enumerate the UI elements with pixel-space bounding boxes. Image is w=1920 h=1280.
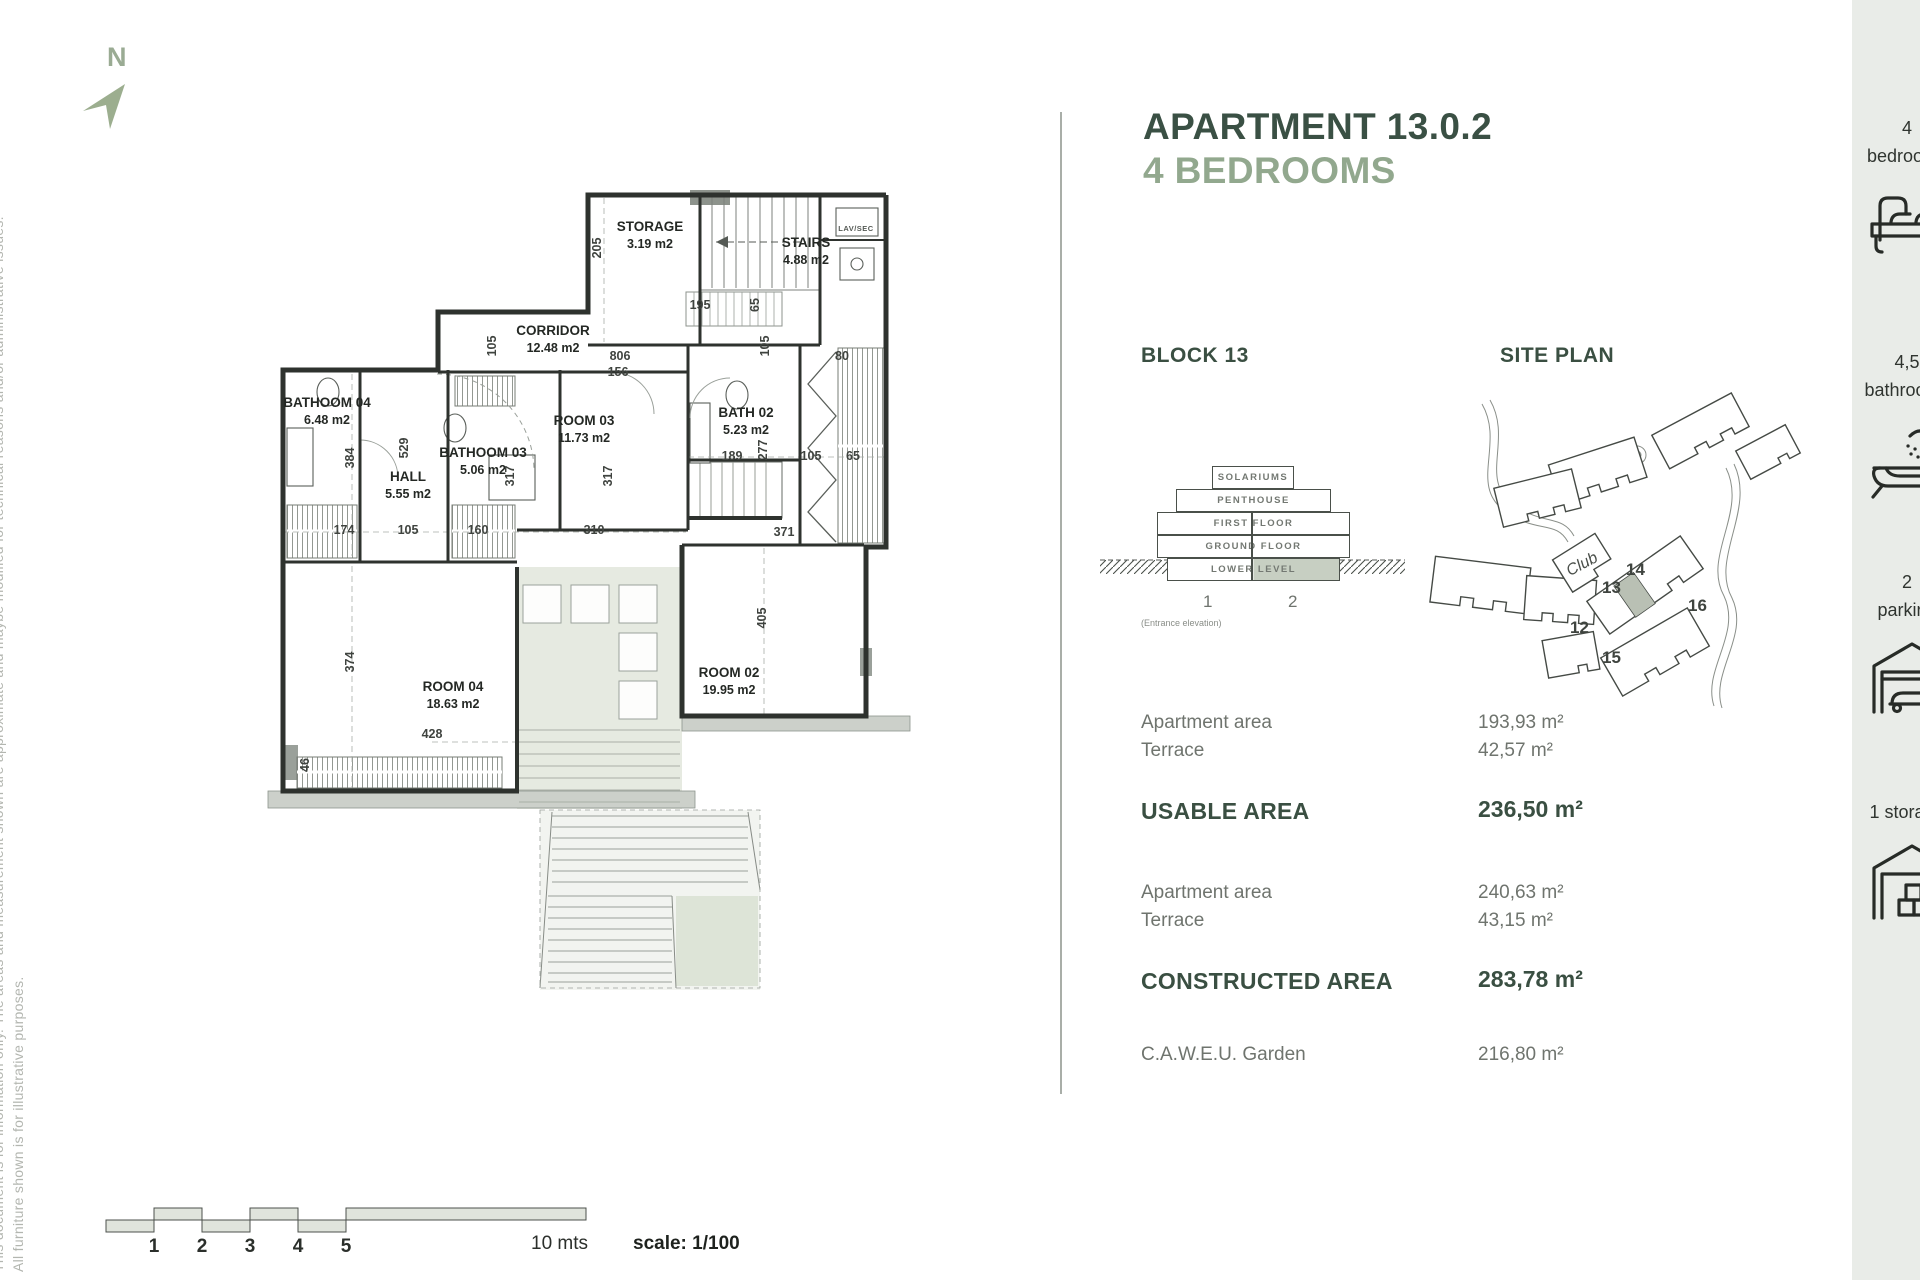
dim-text: 405 (755, 608, 769, 629)
apartment-title: APARTMENT 13.0.2 (1143, 106, 1492, 148)
parking-count: 2 (1902, 572, 1912, 593)
area-row-value: 43,15 m² (1478, 910, 1553, 932)
site-label-13: 13 (1602, 578, 1621, 598)
site-label-16: 16 (1688, 596, 1707, 616)
constructed-area-value: 283,78 m² (1478, 966, 1583, 993)
area-row-label: Terrace (1141, 910, 1204, 932)
room-label-lav: LAV/SEC (838, 224, 873, 234)
disclaimer-line-1: This document is for information only. T… (0, 216, 6, 1272)
dim-text: 195 (690, 298, 711, 312)
garden-value: 216,80 m² (1478, 1044, 1564, 1066)
dim-text: 384 (343, 448, 357, 469)
site-label-12: 12 (1570, 618, 1589, 638)
amenities-sidebar: 4 bedrooms 4,5 bathrooms 2 parking (1852, 0, 1920, 1280)
room-label-hall: HALL5.55 m2 (385, 468, 431, 502)
elevation-level-lower-level: LOWER LEVEL (1167, 558, 1340, 581)
scale-tick: 1 (149, 1236, 160, 1258)
storage-count: 1 storage (1869, 802, 1920, 823)
brochure-page: N This document is for information only.… (0, 0, 1920, 1280)
room-label-stairs: STAIRS4.88 m2 (782, 234, 831, 268)
dim-text: 310 (584, 523, 605, 537)
dim-text: 105 (801, 449, 822, 463)
dim-text: 806 (610, 349, 631, 363)
dim-text: 105 (758, 336, 772, 357)
usable-area-value: 236,50 m² (1478, 796, 1583, 823)
dim-text: 529 (397, 438, 411, 459)
scale-tick: 4 (293, 1236, 304, 1258)
room-label-bath-02: BATH 025.23 m2 (718, 404, 773, 438)
area-row-label: Apartment area (1141, 712, 1272, 734)
elevation-unit-1: 1 (1203, 592, 1212, 612)
scale-tick: 2 (197, 1236, 208, 1258)
disclaimer-line-2: All furniture shown is for illustrative … (10, 976, 26, 1272)
garden-label: C.A.W.E.U. Garden (1141, 1044, 1306, 1066)
dim-text: 317 (601, 466, 615, 487)
area-row-label: Apartment area (1141, 882, 1272, 904)
scale-ratio-label: scale: 1/100 (633, 1233, 740, 1255)
site-label-14: 14 (1626, 560, 1645, 580)
dim-text: 189 (722, 449, 743, 463)
bathrooms-label: bathrooms (1864, 380, 1920, 401)
dim-text: 371 (774, 525, 795, 539)
dim-text: 160 (468, 523, 489, 537)
bed-icon (1866, 186, 1920, 270)
room-label-room-02: ROOM 0219.95 m2 (699, 664, 760, 698)
elevation-level-penthouse: PENTHOUSE (1176, 489, 1331, 512)
elevation-level-first-floor: FIRST FLOOR (1157, 512, 1350, 535)
bedrooms-count: 4 (1902, 118, 1912, 139)
panel-divider (1060, 112, 1062, 1094)
dim-text: 277 (756, 440, 770, 461)
bathtub-icon (1866, 420, 1920, 504)
room-label-corridor: CORRIDOR12.48 m2 (516, 322, 590, 356)
room-label-room-03: ROOM 0311.73 m2 (554, 412, 615, 446)
constructed-area-label: CONSTRUCTED AREA (1141, 968, 1393, 995)
dim-text: 205 (590, 238, 604, 259)
car-garage-icon (1866, 636, 1920, 720)
scale-tick: 3 (245, 1236, 256, 1258)
dim-text: 156 (608, 365, 629, 379)
site-plan-heading: SITE PLAN (1500, 344, 1614, 368)
dim-text: 65 (846, 449, 860, 463)
site-label-15: 15 (1602, 648, 1621, 668)
dim-text: 374 (343, 652, 357, 673)
room-label-room-04: ROOM 0418.63 m2 (423, 678, 484, 712)
north-arrow-icon (83, 84, 125, 129)
dim-text: 428 (422, 727, 443, 741)
area-row-value: 193,93 m² (1478, 712, 1564, 734)
apartment-subtitle: 4 BEDROOMS (1143, 150, 1396, 192)
dim-text: 105 (398, 523, 419, 537)
dim-text: 174 (334, 523, 355, 537)
block-heading: BLOCK 13 (1141, 344, 1249, 368)
dim-text: 80 (835, 349, 849, 363)
dim-text: 46 (298, 758, 312, 772)
dim-text: 105 (485, 336, 499, 357)
area-row-label: Terrace (1141, 740, 1204, 762)
scale-bar (106, 1208, 586, 1232)
dim-text: 317 (503, 466, 517, 487)
parking-label: parking (1877, 600, 1920, 621)
usable-area-label: USABLE AREA (1141, 798, 1310, 825)
room-label-storage: STORAGE3.19 m2 (617, 218, 684, 252)
bathrooms-count: 4,5 (1894, 352, 1919, 373)
bedrooms-label: bedrooms (1867, 146, 1920, 167)
dim-text: 65 (748, 298, 762, 312)
scale-end-label: 10 mts (531, 1233, 588, 1255)
elevation-unit-2: 2 (1288, 592, 1297, 612)
elevation-center-line (1251, 512, 1253, 581)
storage-icon (1866, 838, 1920, 922)
elevation-level-solariums: SOLARIUMS (1212, 466, 1294, 489)
room-label-bathroom-04: BATHOOM 046.48 m2 (283, 394, 371, 428)
north-label: N (107, 42, 127, 73)
elevation-level-ground-floor: GROUND FLOOR (1157, 535, 1350, 558)
scale-tick: 5 (341, 1236, 352, 1258)
elevation-caption: (Entrance elevation) (1141, 618, 1222, 628)
floor-plan-drawing (0, 0, 1920, 1280)
area-row-value: 240,63 m² (1478, 882, 1564, 904)
area-row-value: 42,57 m² (1478, 740, 1553, 762)
